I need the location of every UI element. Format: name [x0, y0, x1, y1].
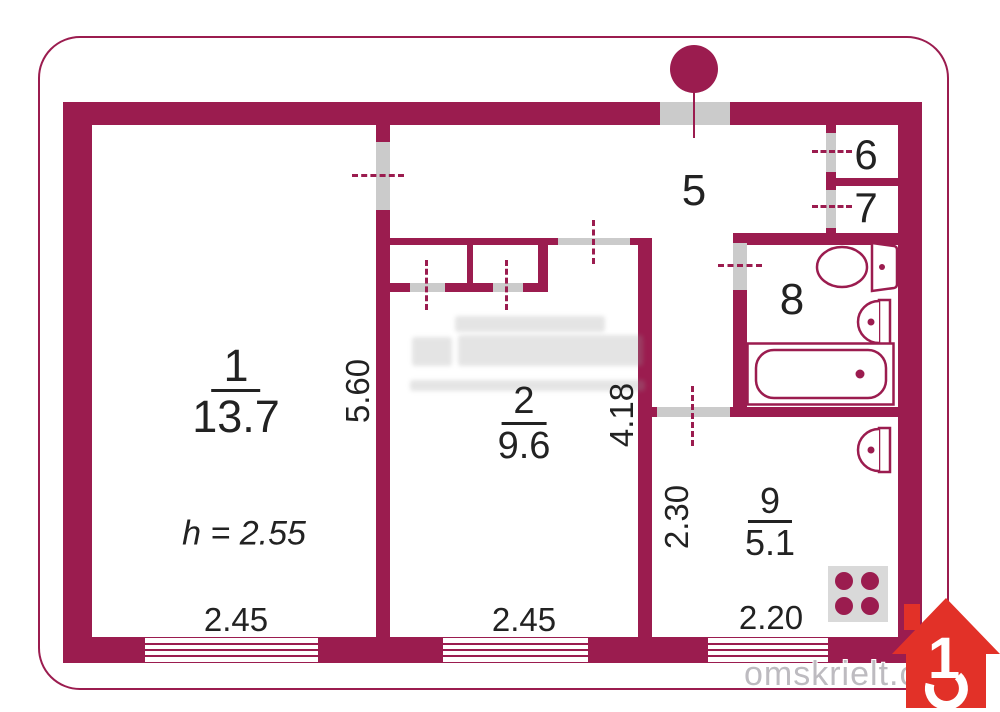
- wall-outer-left: [63, 102, 92, 663]
- dim-kitchen-depth: 2.30: [658, 485, 696, 549]
- dim-room2-width: 2.45: [492, 601, 556, 639]
- closet6-number: 6: [854, 131, 877, 179]
- room1-label: 1 13.7: [192, 340, 280, 443]
- stove-burner: [861, 572, 879, 590]
- sink-kitchen: [852, 426, 894, 474]
- door-opening-closet-right: [493, 283, 523, 292]
- stove-burner: [861, 597, 879, 615]
- hall-number: 5: [682, 166, 706, 216]
- room2-area: 9.6: [498, 425, 551, 468]
- stove: [828, 566, 888, 622]
- kitchen-area: 5.1: [745, 523, 795, 563]
- ceiling-height-note: h = 2.55: [182, 515, 306, 554]
- dim-room2-depth: 4.18: [603, 383, 641, 447]
- room2-label: 2 9.6: [498, 380, 551, 467]
- wall-outer-top: [63, 102, 922, 125]
- stove-burner: [835, 597, 853, 615]
- window-room1: [145, 638, 318, 662]
- faint-watermark-logo-box: [412, 337, 452, 366]
- room2-number: 2: [501, 382, 546, 425]
- bathtub: [746, 342, 895, 406]
- bathroom-number: 8: [780, 275, 804, 325]
- room1-number: 1: [211, 342, 260, 392]
- door-opening-closet7: [826, 190, 836, 228]
- closet7-number: 7: [854, 184, 877, 232]
- faint-watermark-fragment: [458, 335, 643, 366]
- floor-plan: 1 13.7 2 9.6 9 5.1 5 6 7 8 h = 2.55 2.45…: [0, 0, 1000, 712]
- site-logo-house-icon: 1: [892, 596, 1000, 712]
- kitchen-label: 9 5.1: [745, 480, 795, 563]
- dim-room1-width: 2.45: [204, 601, 268, 639]
- wall-closet-divider: [467, 245, 473, 283]
- stove-burner: [835, 572, 853, 590]
- sink-bathroom: [852, 298, 894, 346]
- faint-watermark-fragment: [455, 316, 605, 332]
- door-swing-closet-left: [425, 260, 428, 310]
- toilet: [812, 240, 900, 296]
- door-opening-entrance: [660, 102, 730, 125]
- door-swing-kitchen: [691, 386, 694, 446]
- door-swing-closet7: [812, 205, 852, 208]
- room1-area: 13.7: [192, 392, 280, 442]
- entrance-door-marker: [670, 45, 718, 93]
- door-swing-closet-right: [505, 260, 508, 310]
- wall-outer-right: [898, 102, 922, 663]
- door-swing-room2: [592, 220, 595, 264]
- window-room2: [443, 638, 588, 662]
- logo-digit: 1: [928, 626, 960, 691]
- entrance-door-leaf: [693, 91, 695, 138]
- door-swing-room1: [352, 174, 404, 177]
- door-swing-closet6: [812, 150, 852, 153]
- dim-room1-depth: 5.60: [339, 359, 377, 423]
- door-swing-bathroom: [718, 264, 762, 267]
- kitchen-number: 9: [748, 482, 792, 523]
- dim-kitchen-width: 2.20: [739, 599, 803, 637]
